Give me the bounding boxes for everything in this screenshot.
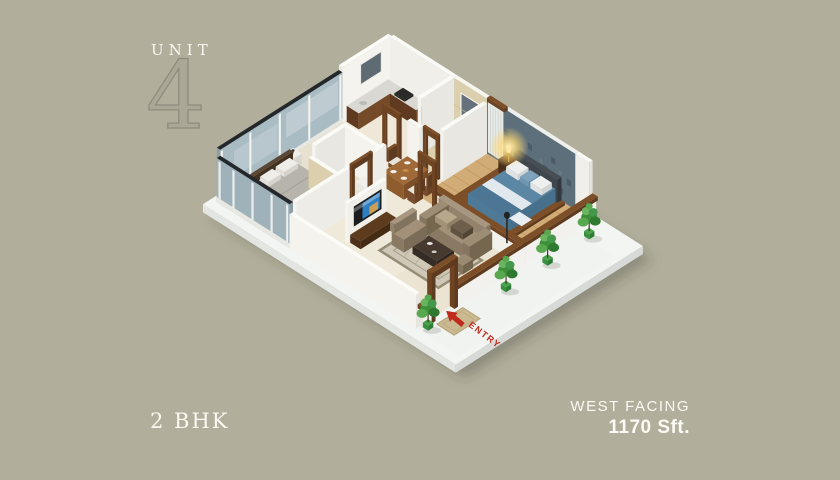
facing-label: WEST FACING: [570, 398, 690, 415]
area-label: 1170 Sft.: [570, 417, 690, 439]
unit-4-floor-plan-card: ENTRY UNIT 4 2 BHK WEST FACING 1170 Sft.: [0, 0, 840, 480]
unit-number: 4: [146, 50, 206, 144]
facing-block: WEST FACING 1170 Sft.: [570, 398, 690, 439]
floor-plan-render: ENTRY: [0, 0, 840, 480]
config-label: 2 BHK: [150, 409, 229, 433]
